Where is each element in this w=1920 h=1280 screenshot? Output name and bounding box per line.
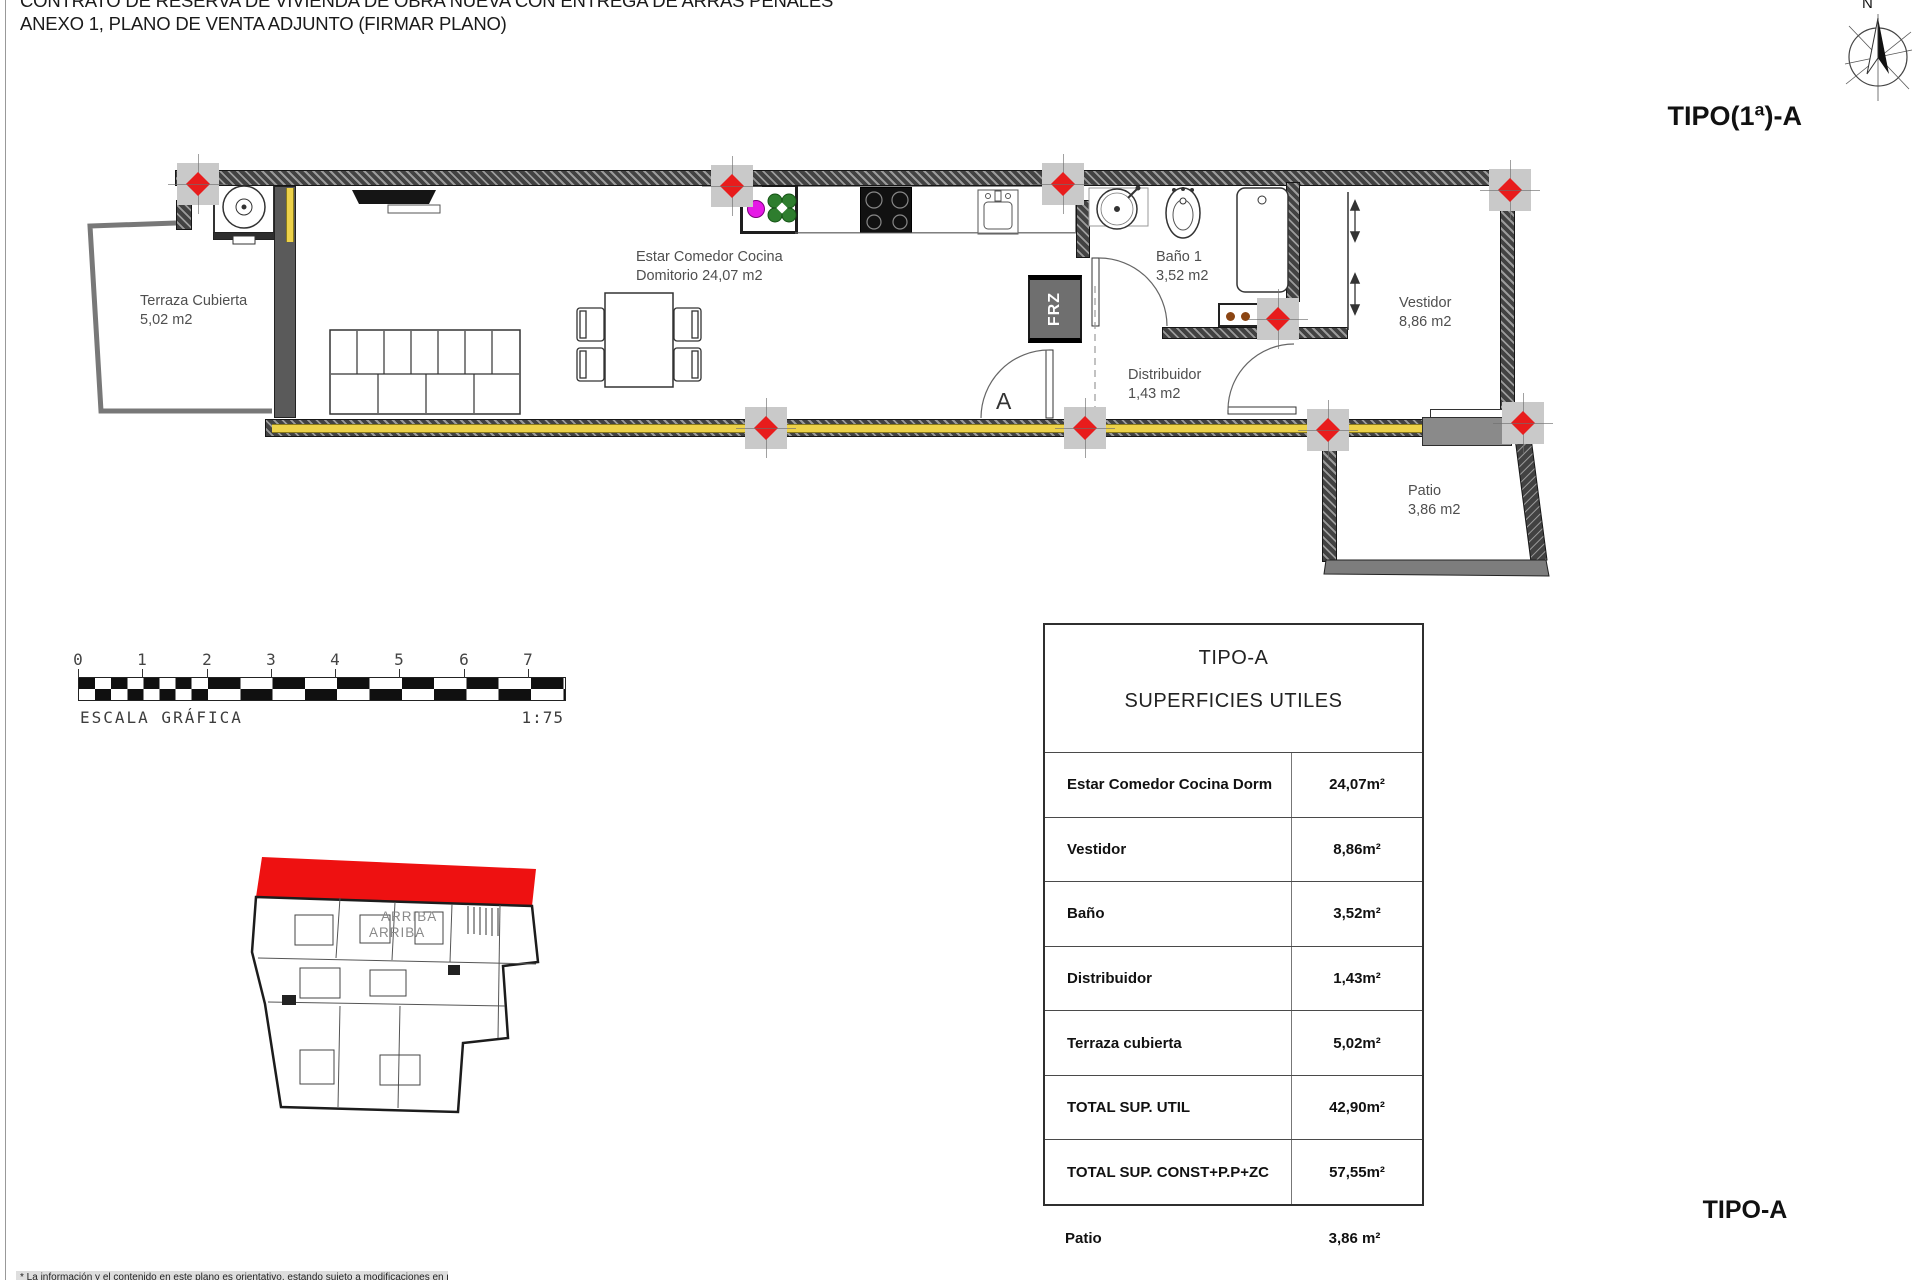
table-row: Baño 3,52m² [1045, 881, 1422, 946]
scale-number: 5 [394, 650, 404, 669]
row-label: TOTAL SUP. CONST+P.P+ZC [1045, 1140, 1291, 1204]
laundry-niche [213, 177, 275, 237]
row-label: Terraza cubierta [1045, 1011, 1291, 1075]
scale-number: 6 [459, 650, 469, 669]
insulation-strip-vertical [286, 188, 294, 242]
bathtub-icon [1237, 188, 1288, 292]
compass-icon [1845, 14, 1912, 101]
junction-marker-icon [1042, 163, 1084, 205]
row-label: Distribuidor [1045, 947, 1291, 1011]
scale-number: 7 [523, 650, 533, 669]
wall-top [175, 170, 1516, 186]
patio-vent [1422, 417, 1512, 446]
type-label-top: TIPO(1ª)-A [1560, 101, 1802, 132]
table-row: Estar Comedor Cocina Dorm 24,07m² [1045, 752, 1422, 817]
wall-bath-vestidor [1286, 182, 1300, 302]
section-letter: A [996, 392, 1011, 411]
toilet-icon [1166, 188, 1200, 239]
dining-table-icon [577, 293, 701, 387]
graphic-scale-bar [78, 677, 566, 701]
scale-number: 0 [73, 650, 83, 669]
junction-marker-icon [745, 407, 787, 449]
room-name: Vestidor [1399, 294, 1451, 313]
room-name: Patio [1408, 482, 1460, 501]
table-row: Vestidor 8,86m² [1045, 817, 1422, 882]
compass-north-label: N [1862, 0, 1873, 12]
insulation-strip-bottom [272, 424, 1340, 433]
junction-marker-icon [1489, 169, 1531, 211]
door-vestidor [1228, 344, 1296, 414]
key-plan: ARRIBA ARRIBA [252, 857, 538, 1112]
wall-patio-left [1322, 437, 1337, 562]
floor-plan-sheet: CONTRATO DE RESERVA DE VIVIENDA DE OBRA … [0, 0, 1920, 1280]
scale-title: ESCALA GRÁFICA [80, 708, 243, 727]
row-value: 57,55m² [1291, 1140, 1422, 1204]
document-title-line2: ANEXO 1, PLANO DE VENTA ADJUNTO (FIRMAR … [20, 13, 507, 35]
areas-table: TIPO-A SUPERFICIES UTILES Estar Comedor … [1043, 623, 1424, 1206]
vanity-sink-dot-icon [1226, 312, 1235, 321]
wall-vestidor-right [1500, 190, 1515, 423]
room-name: Estar Comedor Cocina [636, 248, 783, 267]
room-label-estar: Estar Comedor Cocina Domitorio 24,07 m2 [636, 248, 783, 286]
areas-table-header: TIPO-A SUPERFICIES UTILES [1045, 625, 1422, 752]
scale-number: 2 [202, 650, 212, 669]
room-area: 1,43 m2 [1128, 385, 1201, 404]
row-label: Vestidor [1045, 818, 1291, 882]
disclaimer-note: * La información y el contenido en este … [16, 1271, 448, 1280]
room-area: 3,86 m2 [1408, 501, 1460, 520]
room-area: 3,52 m2 [1156, 267, 1208, 286]
table-footer-value: 3,86 m² [1289, 1230, 1420, 1247]
row-value: 1,43m² [1291, 947, 1422, 1011]
row-value: 8,86m² [1291, 818, 1422, 882]
scale-number: 3 [266, 650, 276, 669]
wall-niche-bottom [213, 232, 275, 240]
table-row: Terraza cubierta 5,02m² [1045, 1010, 1422, 1075]
fridge-label: FRZ [1046, 292, 1064, 326]
table-row: TOTAL SUP. UTIL 42,90m² [1045, 1075, 1422, 1140]
room-name: Baño 1 [1156, 248, 1208, 267]
junction-marker-icon [1307, 409, 1349, 451]
arriba-label-1: ARRIBA [381, 909, 437, 924]
cooktop-icon [860, 187, 912, 233]
fridge-box: FRZ [1028, 275, 1082, 343]
room-area: 8,86 m2 [1399, 313, 1451, 332]
scale-number: 1 [137, 650, 147, 669]
table-title: TIPO-A [1045, 647, 1422, 670]
bath-sink-icon [1089, 186, 1148, 229]
row-value: 5,02m² [1291, 1011, 1422, 1075]
junction-marker-icon [1257, 298, 1299, 340]
scale-number: 4 [330, 650, 340, 669]
scale-ratio: 1:75 [500, 708, 564, 727]
row-label: Estar Comedor Cocina Dorm [1045, 753, 1291, 817]
sofa-icon [330, 330, 520, 414]
junction-marker-icon [1064, 407, 1106, 449]
junction-marker-icon [177, 163, 219, 205]
key-plan-highlight [256, 857, 536, 906]
row-value: 24,07m² [1291, 753, 1422, 817]
room-label-vestidor: Vestidor 8,86 m2 [1399, 294, 1451, 332]
room-area: Domitorio 24,07 m2 [636, 267, 783, 286]
table-footer-label: Patio [1065, 1230, 1102, 1247]
row-value: 3,52m² [1291, 882, 1422, 946]
row-label: TOTAL SUP. UTIL [1045, 1076, 1291, 1140]
tv-icon [352, 190, 440, 213]
table-row: Distribuidor 1,43m² [1045, 946, 1422, 1011]
wall-bath-bottom [1162, 327, 1348, 339]
room-label-bano: Baño 1 3,52 m2 [1156, 248, 1208, 286]
junction-marker-icon [711, 165, 753, 207]
junction-marker-icon [1502, 402, 1544, 444]
row-value: 42,90m² [1291, 1076, 1422, 1140]
insulation-strip-patio [1345, 424, 1425, 433]
arriba-label-2: ARRIBA [369, 925, 425, 940]
room-name: Distribuidor [1128, 366, 1201, 385]
closet [1348, 192, 1359, 330]
document-title-line1: CONTRATO DE RESERVA DE VIVIENDA DE OBRA … [20, 0, 833, 12]
type-label-bottom: TIPO-A [1680, 1196, 1810, 1225]
door-living [981, 350, 1053, 418]
room-area: 5,02 m2 [140, 311, 247, 330]
table-row: TOTAL SUP. CONST+P.P+ZC 57,55m² [1045, 1139, 1422, 1204]
wall-kitchen-bath [1076, 200, 1090, 258]
room-label-distribuidor: Distribuidor 1,43 m2 [1128, 366, 1201, 404]
room-name: Terraza Cubierta [140, 292, 247, 311]
table-subtitle: SUPERFICIES UTILES [1045, 690, 1422, 713]
kitchen-counter [795, 186, 1076, 233]
row-label: Baño [1045, 882, 1291, 946]
room-label-terraza: Terraza Cubierta 5,02 m2 [140, 292, 247, 330]
page-border-line [5, 0, 6, 1280]
room-label-patio: Patio 3,86 m2 [1408, 482, 1460, 520]
